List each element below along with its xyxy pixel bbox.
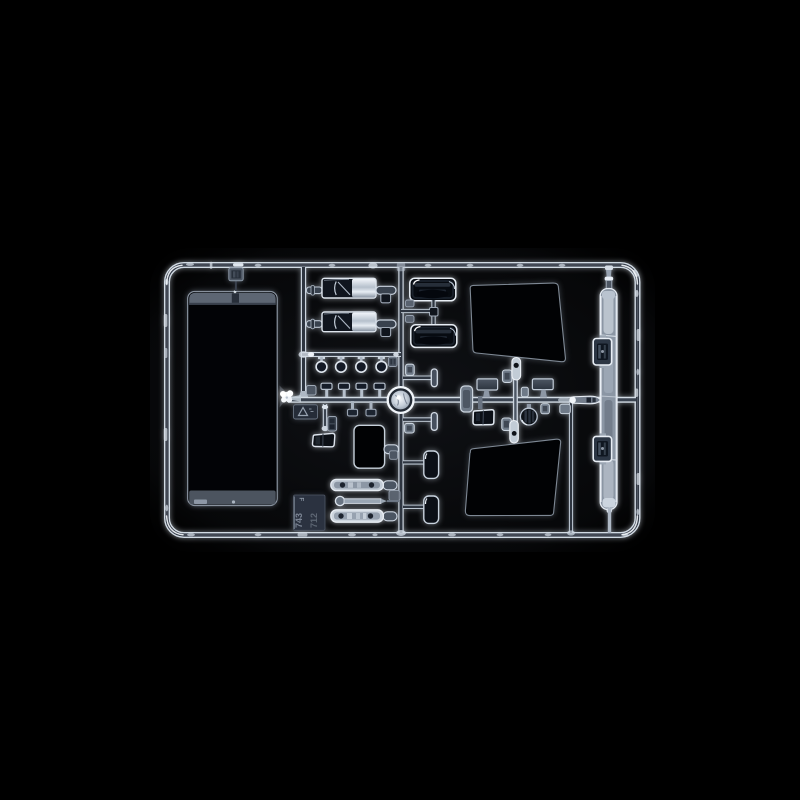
svg-text:F: F: [298, 498, 304, 502]
svg-text:712: 712: [309, 513, 319, 528]
svg-text:743: 743: [294, 513, 304, 528]
